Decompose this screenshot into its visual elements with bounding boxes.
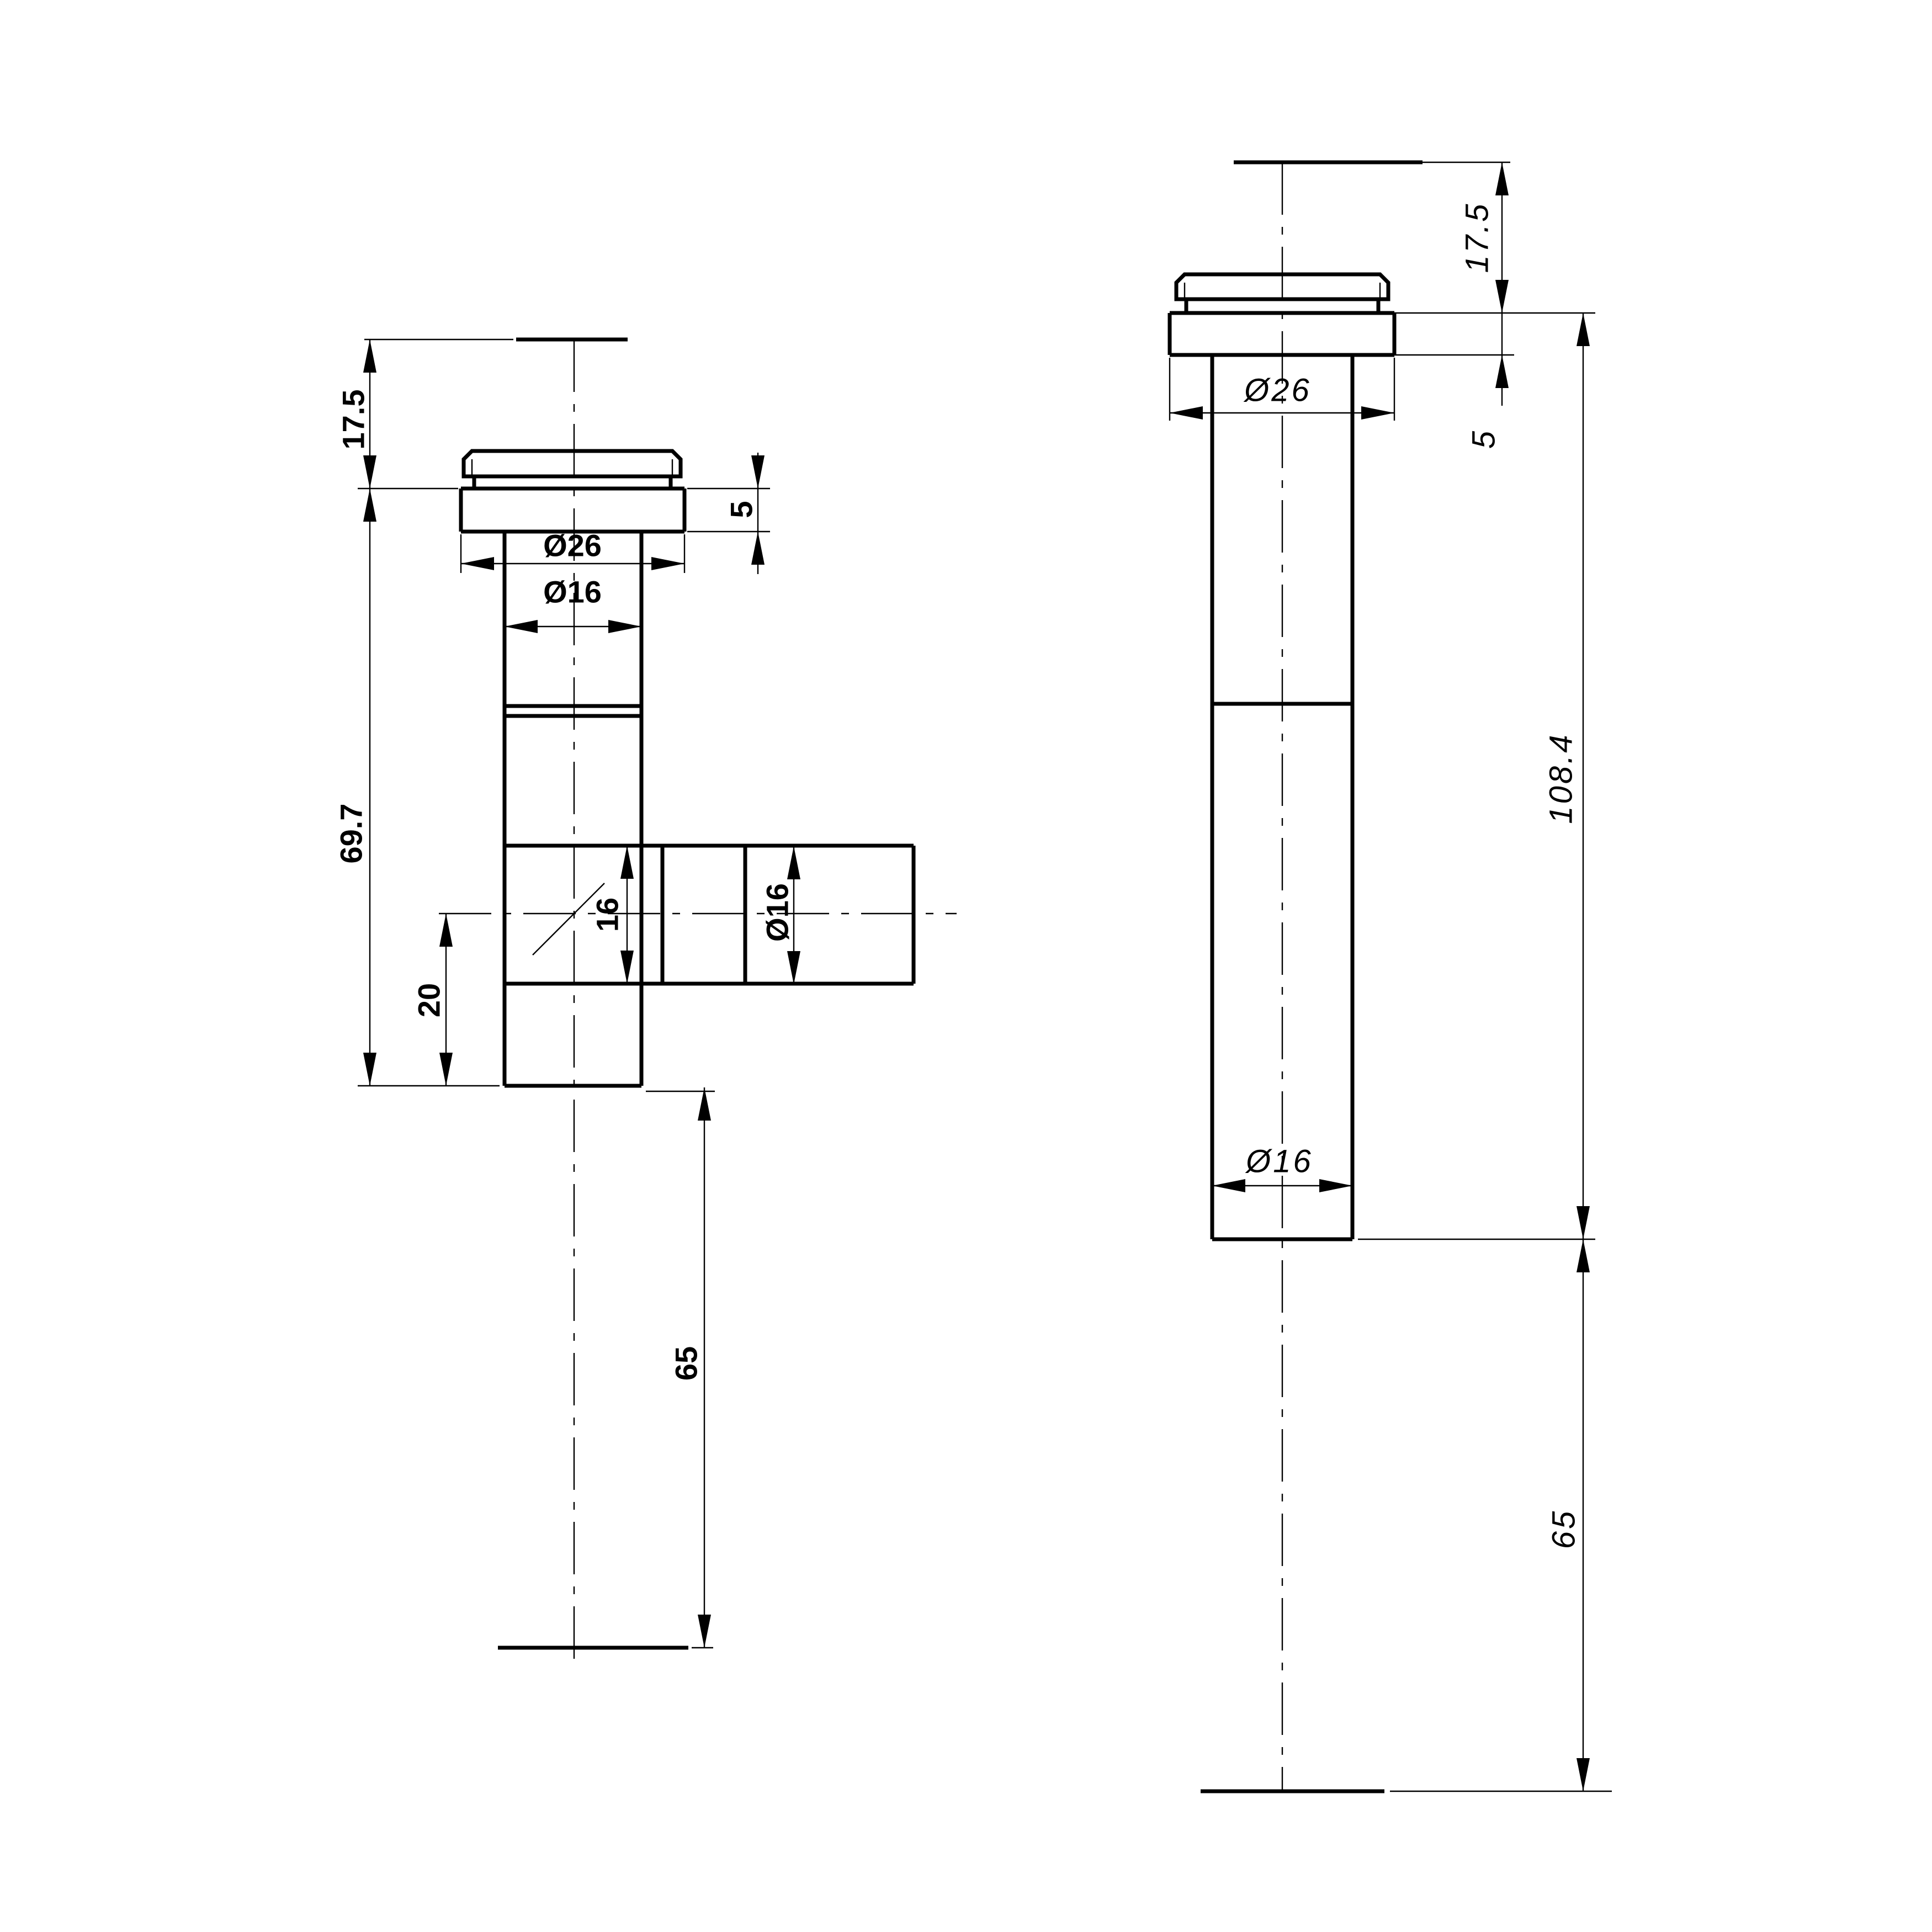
- dimension-label: Ø16: [760, 883, 795, 942]
- dimension-label: 20: [412, 983, 447, 1017]
- dimension-label: Ø16: [543, 575, 602, 609]
- engineering-drawing-canvas: 17.569.75Ø26Ø1616Ø16206517.55Ø26108.4Ø16…: [0, 0, 1932, 1932]
- dimension-label: 17.5: [336, 390, 371, 450]
- dimension-label: 108.4: [1543, 733, 1579, 824]
- dimension-label: 65: [1546, 1509, 1582, 1549]
- dimension-label: 65: [669, 1346, 704, 1381]
- dimension-label: Ø16: [1245, 1144, 1313, 1180]
- dimension-label: Ø26: [1243, 373, 1312, 408]
- dimension-label: 17.5: [1459, 202, 1495, 273]
- dimension-label: 5: [724, 501, 759, 518]
- dimension-label: Ø26: [543, 528, 602, 563]
- dimension-label: 69.7: [334, 804, 369, 864]
- dimension-label: 5: [1466, 429, 1502, 449]
- drawing-sheet: 17.569.75Ø26Ø1616Ø16206517.55Ø26108.4Ø16…: [0, 0, 1932, 1932]
- dimension-label: 16: [590, 898, 625, 932]
- sheet-background: [0, 0, 1932, 1932]
